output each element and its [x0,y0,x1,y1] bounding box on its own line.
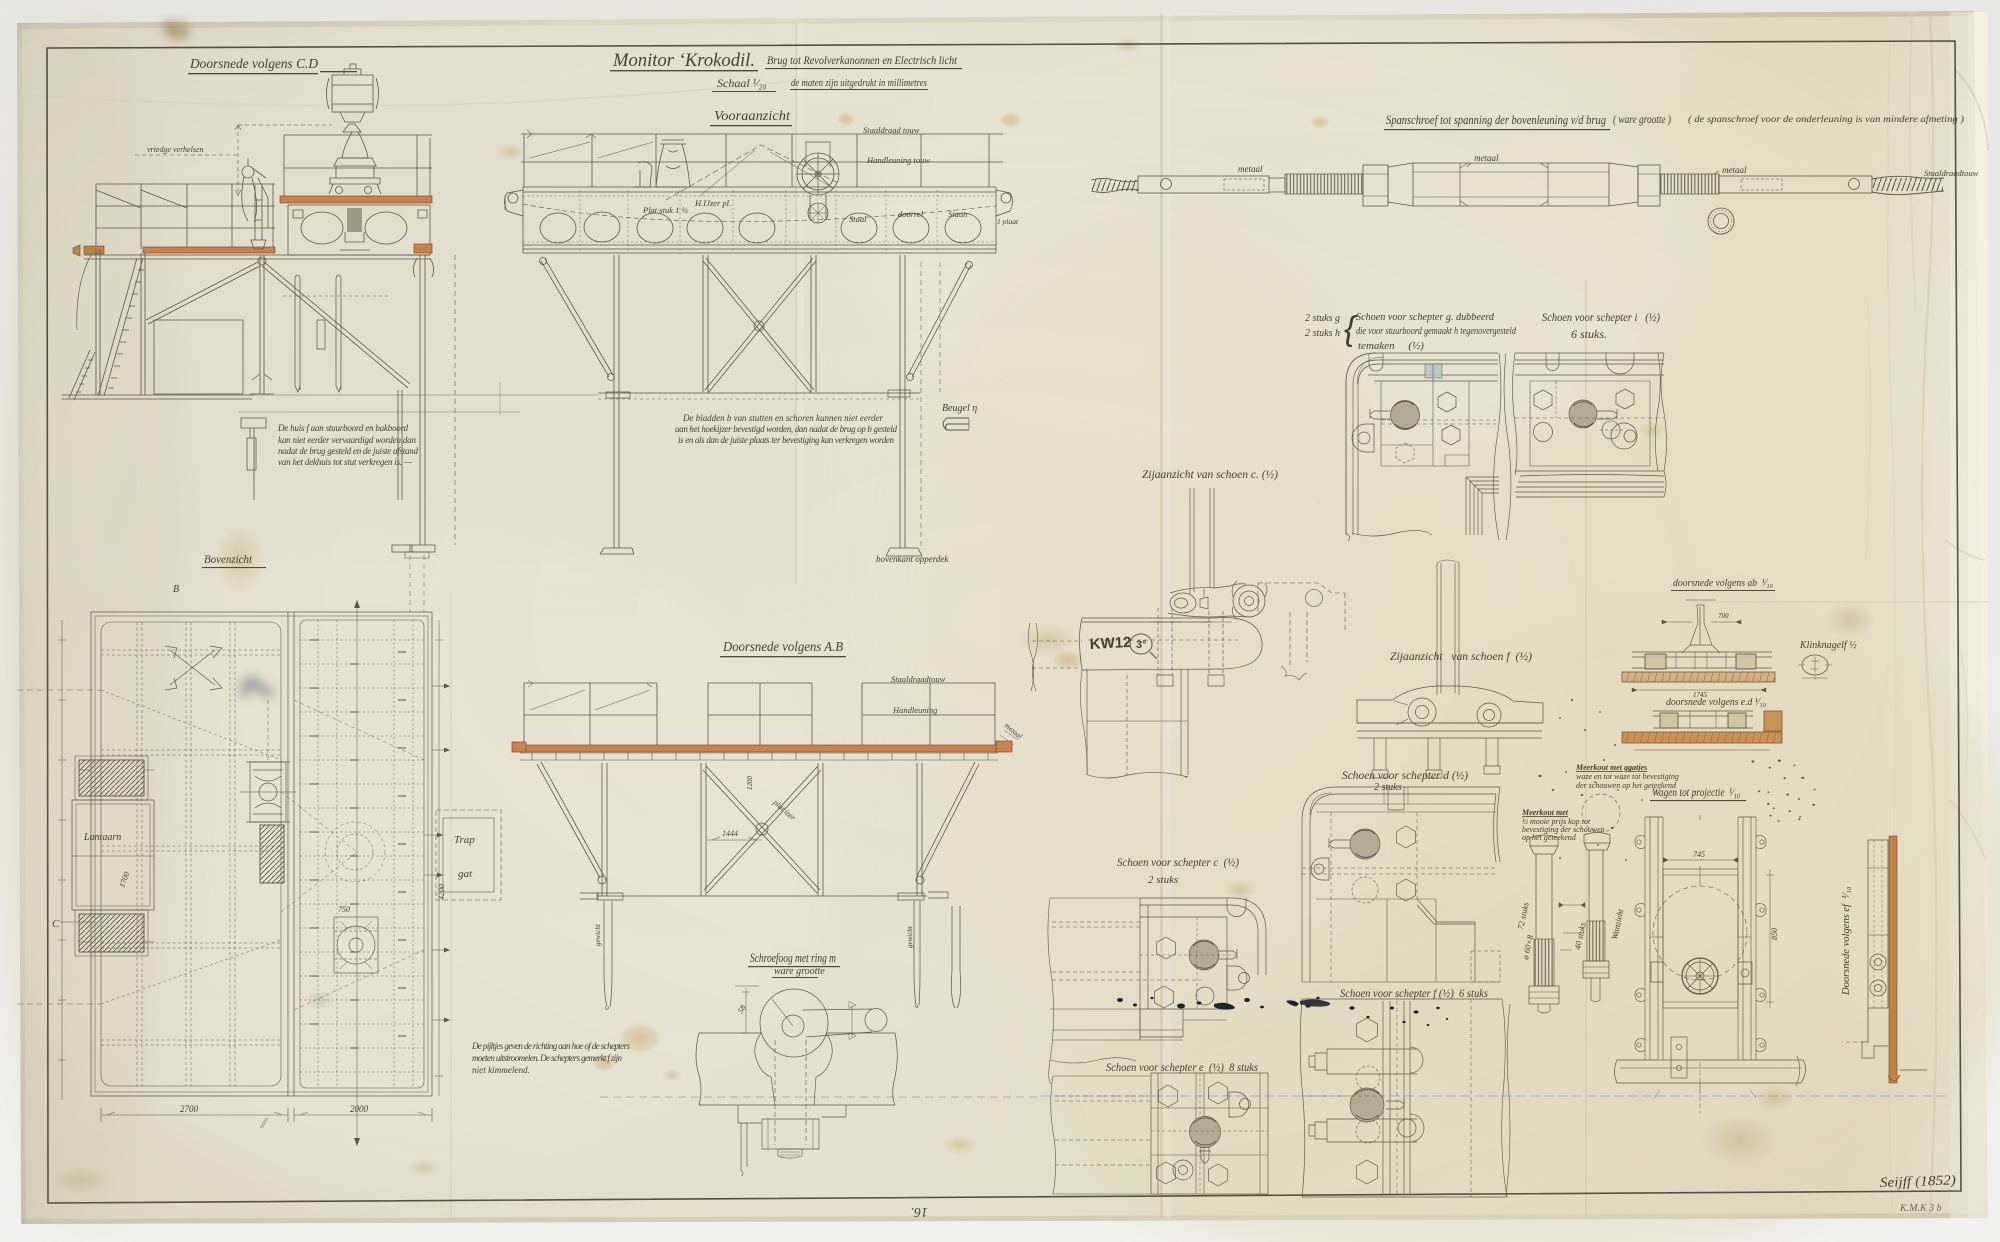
svg-text:aan het hoekijzer bevestigd wo: aan het hoekijzer bevestigd worden, dan … [675,424,898,434]
svg-text:Schroefoog met ring m: Schroefoog met ring m [750,950,836,965]
svg-text:Wagen tot projectie ¹⁄₁₀: Wagen tot projectie ¹⁄₁₀ [1652,785,1740,799]
svg-text:Staaldraadtouw: Staaldraadtouw [1924,168,1979,178]
svg-text:K.M.K 3 b: K.M.K 3 b [1899,1203,1942,1214]
svg-text:Staun: Staun [948,209,967,219]
svg-text:2000: 2000 [350,1104,369,1114]
svg-text:De bladden b van stutten en sc: De bladden b van stutten en schoren kunn… [682,413,883,423]
svg-text:Spanschroef tot spanning der b: Spanschroef tot spanning der bovenleunin… [1386,113,1606,127]
svg-text:16.: 16. [911,1204,929,1219]
svg-text:Schoen voor schepter c (½): Schoen voor schepter c (½) [1117,855,1239,869]
svg-text:( ware grootte ): ( ware grootte ) [1613,112,1671,126]
svg-text:is en als dan de juiste plaats: is en als dan de juiste plaats ter beves… [678,435,895,445]
svg-text:metaal: metaal [1238,164,1263,174]
svg-text:1444: 1444 [722,829,738,838]
svg-text:6 stuks.: 6 stuks. [1571,327,1607,341]
svg-text:Lantaarn: Lantaarn [83,832,121,843]
svg-text:Doorsnede volgens ef ¹⁄₁₀: Doorsnede volgens ef ¹⁄₁₀ [1841,886,1852,996]
svg-text:Brug tot Revolverkanonnen en E: Brug tot Revolverkanonnen en Electrisch … [767,53,958,67]
svg-text:gewicht: gewicht [594,923,602,946]
svg-text:700: 700 [1718,612,1729,620]
svg-text:temaken (½): temaken (½) [1358,340,1424,352]
svg-text:4200: 4200 [437,884,446,900]
svg-text:Seijff (1852): Seijff (1852) [1880,1173,1957,1191]
svg-text:Meerkout met gaatjes: Meerkout met gaatjes [1575,763,1647,772]
svg-text:nadat de brug gesteld en de ju: nadat de brug gesteld en de juiste afsta… [278,446,419,456]
svg-text:1200: 1200 [746,776,754,791]
svg-text:2 stuks: 2 stuks [1148,874,1178,886]
svg-text:Schaal ¹⁄₂₀: Schaal ¹⁄₂₀ [717,76,767,90]
svg-text:waze en tot waze tot bevestigi: waze en tot waze tot bevestiging [1576,772,1679,781]
svg-text:Zijaanzicht van schoen c. (½): Zijaanzicht van schoen c. (½) [1142,467,1278,481]
svg-text:Beugel η: Beugel η [942,403,977,414]
svg-text:Doorsnede volgens A.B: Doorsnede volgens A.B [722,640,843,655]
svg-text:Handleuning touw: Handleuning touw [866,155,930,165]
svg-text:Handleuning: Handleuning [892,705,937,715]
svg-text:3°: 3° [1136,639,1147,651]
svg-text:De huis f aan stuurboord en ba: De huis f aan stuurboord en bakboord [277,423,409,433]
svg-text:Klinknagelf ½: Klinknagelf ½ [1799,640,1857,651]
svg-text:niet kimmelend.: niet kimmelend. [472,1065,530,1075]
svg-text:Plat stuk 1 ½: Plat stuk 1 ½ [642,205,688,215]
svg-text:Trap: Trap [454,834,475,846]
svg-text:metaal: metaal [1722,165,1747,175]
svg-text:die voor stuurboord gemaakt h: die voor stuurboord gemaakt h tegenoverg… [1356,325,1516,337]
svg-text:Staaldraadtouw: Staaldraadtouw [891,674,946,684]
svg-text:Schoen voor schepter i (½): Schoen voor schepter i (½) [1542,310,1660,324]
svg-text:kan niet eerder vervaardigd wo: kan niet eerder vervaardigd worden dan [278,435,417,445]
svg-text:Zijaanzicht van schoen f (½: Zijaanzicht van schoen f (½) [1390,649,1532,663]
svg-text:Schoen voor schepter e (½) 8: Schoen voor schepter e (½) 8 stuks [1106,1062,1258,1074]
svg-text:Schoen voor schepter d (½): Schoen voor schepter d (½) [1342,768,1468,782]
svg-text:doorrel: doorrel [898,209,924,219]
svg-text:metaal: metaal [1474,153,1499,163]
svg-text:750: 750 [338,905,350,914]
svg-text:vriedge verhelsen: vriedge verhelsen [147,145,204,154]
svg-text:gat: gat [458,868,473,880]
svg-text:H.IJzer pl.: H.IJzer pl. [694,198,731,208]
svg-text:KW12: KW12 [1089,634,1132,653]
svg-text:( de spanschroef voor de onder: ( de spanschroef voor de onderleuning is… [1688,114,1964,125]
svg-text:Schoen voor schepter f (½) 6: Schoen voor schepter f (½) 6 stuks [1340,988,1488,1000]
svg-text:1 plaat: 1 plaat [997,217,1019,226]
svg-text:C: C [52,918,60,930]
svg-text:moeten uitstroomelen. De schep: moeten uitstroomelen. De schepters gemer… [472,1053,623,1063]
svg-text:Bovenzicht: Bovenzicht [204,552,253,566]
svg-text:2 stuks g: 2 stuks g [1305,313,1340,324]
svg-text:doorsnede volgens e.d ¹⁄₁₀: doorsnede volgens e.d ¹⁄₁₀ [1666,696,1766,708]
svg-text:Vooraanzicht: Vooraanzicht [714,109,791,124]
svg-text:2 stuks h: 2 stuks h [1305,328,1340,339]
svg-text:ware grootte: ware grootte [774,966,825,977]
svg-text:Doorsnede volgens C.D: Doorsnede volgens C.D [189,57,318,72]
svg-text:Staal: Staal [849,214,867,224]
svg-text:bovenkant opperdek: bovenkant opperdek [876,554,949,564]
svg-text:gewicht: gewicht [906,925,914,948]
svg-text:B: B [173,584,179,595]
svg-text:850: 850 [1770,928,1779,940]
svg-text:745: 745 [1693,850,1705,859]
svg-text:Staaldraad touw: Staaldraad touw [863,125,920,135]
svg-text:de maten zijn uitgedrukt in mi: de maten zijn uitgedrukt in millimetres [791,78,927,89]
svg-text:Schoen voor schepter g. dubbee: Schoen voor schepter g. dubbeerd [1356,311,1494,323]
svg-text:Meerkout met: Meerkout met [1521,808,1569,817]
svg-text:Monitor ‘Krokodil.: Monitor ‘Krokodil. [612,50,755,71]
svg-text:2700: 2700 [180,1104,199,1114]
svg-text:van het dekhuis tot stut verkr: van het dekhuis tot stut verkregen is. — [278,457,413,467]
svg-text:doorsnede volgens ab ¹⁄₁₀: doorsnede volgens ab ¹⁄₁₀ [1673,577,1773,589]
svg-text:De pijltjes geven de richting: De pijltjes geven de richting aan hoe of… [471,1041,630,1051]
